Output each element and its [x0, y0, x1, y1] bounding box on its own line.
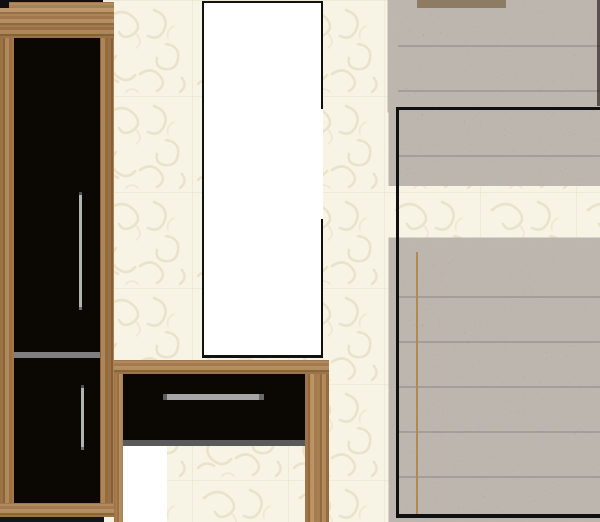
console-left-leg — [114, 374, 123, 522]
console-drawer-handle[interactable] — [163, 394, 264, 400]
cabinet-top-rail — [0, 2, 114, 38]
wardrobe-outline-left — [396, 107, 399, 518]
cabinet-corner-notch — [0, 0, 9, 8]
gray-wardrobe-top[interactable] — [398, 0, 600, 107]
wardrobe-tan-strip — [417, 0, 506, 8]
cabinet-handle-bottom[interactable] — [81, 385, 84, 450]
white-panel[interactable] — [202, 1, 323, 358]
gray-wardrobe-front[interactable] — [396, 107, 600, 518]
furniture-collage-scene — [0, 0, 600, 522]
cabinet-top-edge — [0, 0, 103, 2]
white-panel-right-border-lower — [321, 219, 323, 355]
cabinet-handle-top[interactable] — [79, 192, 82, 310]
console-top-rail — [114, 360, 329, 374]
white-panel-right-border-upper — [321, 3, 323, 109]
console-floor-patch — [123, 446, 167, 522]
console-drawer[interactable] — [123, 374, 305, 440]
wardrobe-tan-line — [416, 252, 418, 514]
cabinet-floor-shadow — [0, 517, 104, 522]
console-right-leg — [305, 374, 329, 522]
cabinet-door-bottom[interactable] — [14, 358, 100, 503]
console-table[interactable] — [114, 360, 329, 522]
wardrobe-outline-bottom — [396, 514, 600, 518]
cabinet-bottom-rail — [0, 503, 114, 517]
tall-cabinet[interactable] — [0, 0, 114, 522]
cabinet-door-top[interactable] — [14, 38, 100, 352]
wardrobe-outline-top — [396, 107, 600, 110]
